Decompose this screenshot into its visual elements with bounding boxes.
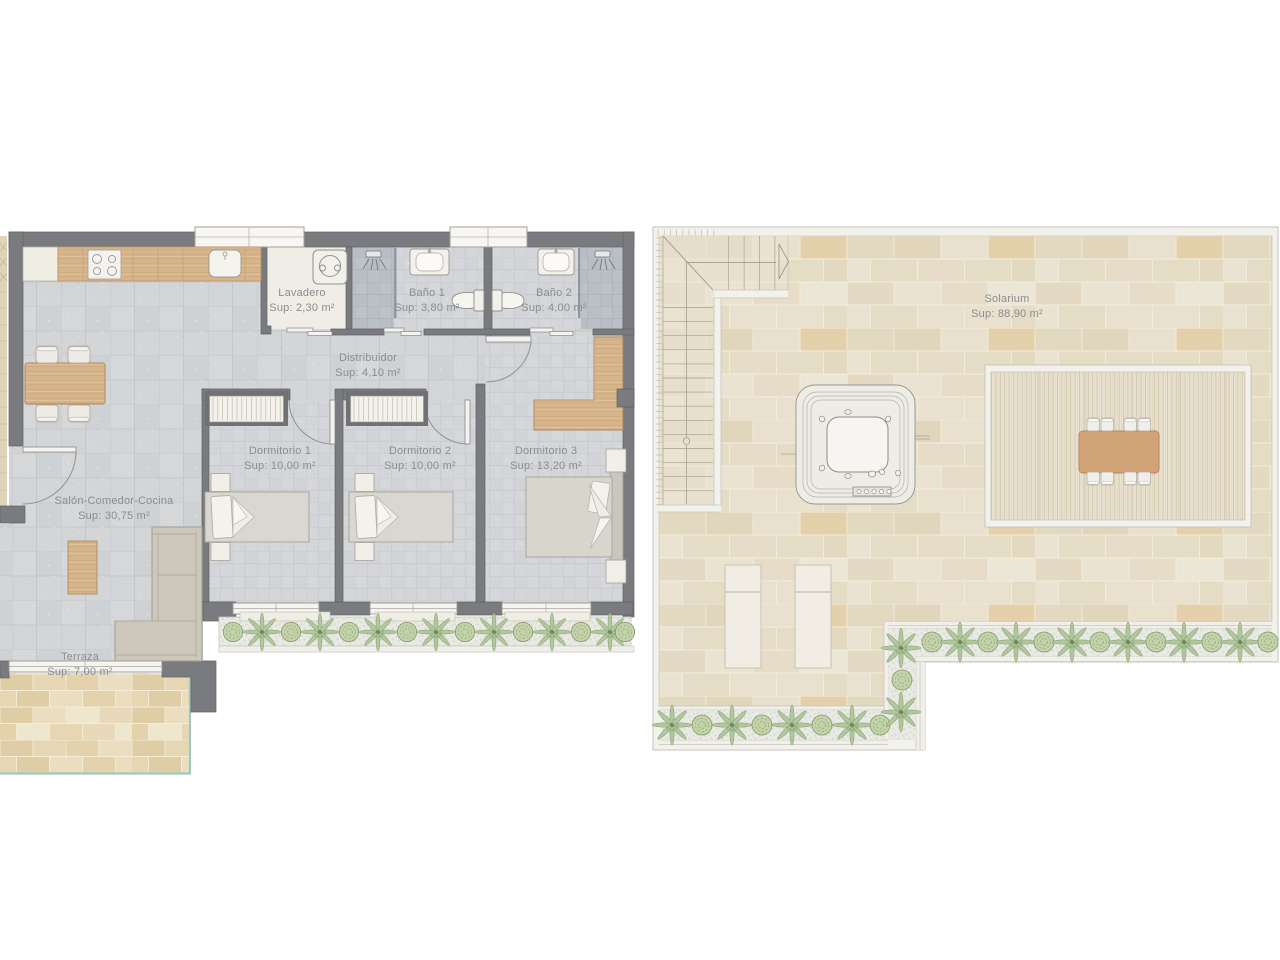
svg-text:Sup: 13,20 m²: Sup: 13,20 m² <box>510 460 582 472</box>
svg-text:Dormitorio 2: Dormitorio 2 <box>389 445 451 457</box>
svg-text:Sup: 10,00 m²: Sup: 10,00 m² <box>244 460 316 472</box>
svg-text:Sup: 88,90 m²: Sup: 88,90 m² <box>971 308 1043 320</box>
svg-text:Sup: 4,10 m²: Sup: 4,10 m² <box>335 367 401 379</box>
svg-text:Sup: 7,00 m²: Sup: 7,00 m² <box>47 666 113 678</box>
svg-text:Baño 2: Baño 2 <box>536 287 572 299</box>
svg-text:Lavadero: Lavadero <box>278 287 325 299</box>
svg-text:Distribuidor: Distribuidor <box>339 352 397 364</box>
svg-text:Sup: 2,30 m²: Sup: 2,30 m² <box>269 302 335 314</box>
svg-text:Sup: 30,75 m²: Sup: 30,75 m² <box>78 510 150 522</box>
svg-text:Sup: 10,00 m²: Sup: 10,00 m² <box>384 460 456 472</box>
svg-text:Sup: 4,00 m²: Sup: 4,00 m² <box>521 302 587 314</box>
svg-text:Terraza: Terraza <box>61 651 100 663</box>
svg-text:Dormitorio 3: Dormitorio 3 <box>515 445 577 457</box>
svg-text:Solarium: Solarium <box>984 293 1029 305</box>
svg-text:Dormitorio 1: Dormitorio 1 <box>249 445 311 457</box>
svg-text:Baño 1: Baño 1 <box>409 287 445 299</box>
svg-text:Sup: 3,80 m²: Sup: 3,80 m² <box>394 302 460 314</box>
svg-text:Salón-Comedor-Cocina: Salón-Comedor-Cocina <box>55 495 175 507</box>
